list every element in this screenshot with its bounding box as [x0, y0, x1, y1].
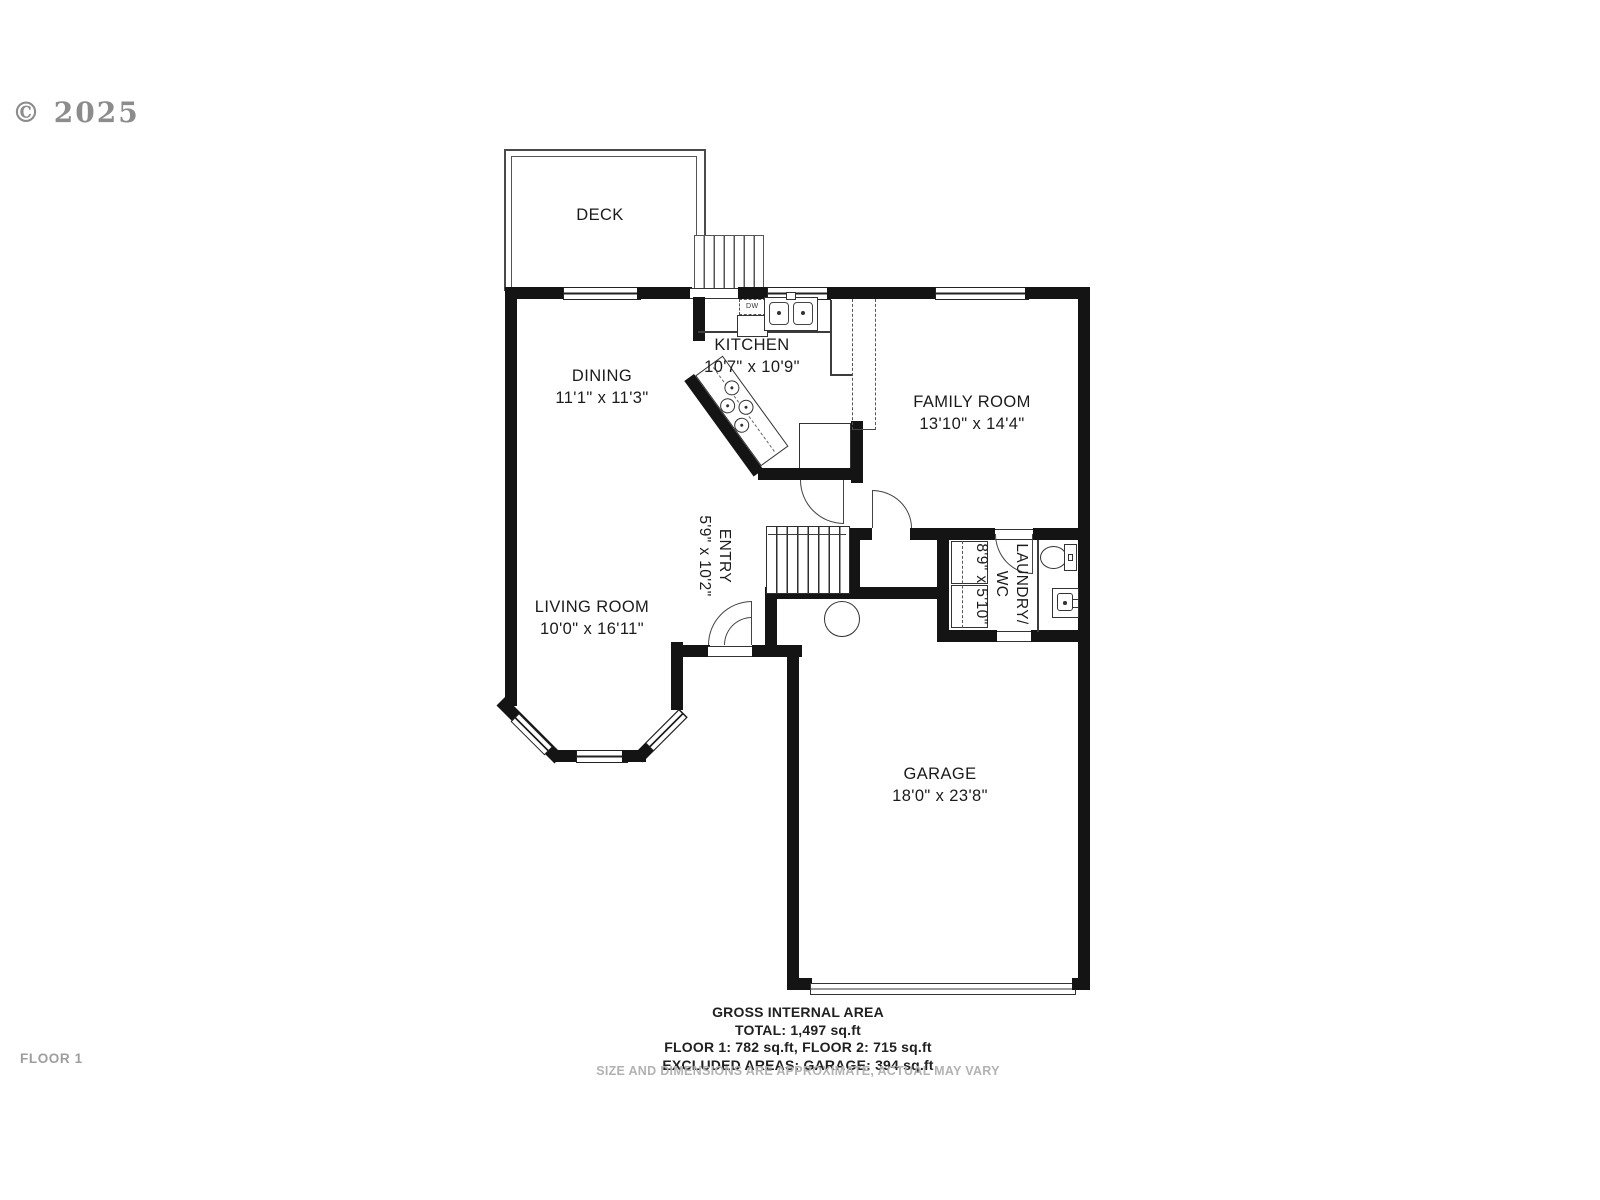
entry-staircase — [766, 526, 850, 594]
summary-floors: FLOOR 1: 782 sq.ft, FLOOR 2: 715 sq.ft — [598, 1039, 998, 1057]
deck-name: DECK — [576, 205, 623, 227]
laundry-wall-bottom — [945, 630, 997, 642]
copyright-watermark: © 2025 — [12, 96, 140, 129]
laundry-dims: 8'9" x 5'10" — [971, 543, 991, 624]
summary-total: TOTAL: 1,497 sq.ft — [598, 1022, 998, 1040]
room-label-dining: DINING 11'1" x 11'3" — [555, 366, 648, 410]
dishwasher-label: DW — [746, 303, 759, 310]
floor-plan: © 2025 FLOOR 1 GROSS INTERNAL AREA TOTAL… — [0, 0, 1600, 1200]
garage-door — [810, 983, 1076, 995]
kitchen-dims: 10'7" x 10'9" — [704, 357, 800, 379]
wall-front — [671, 645, 710, 657]
deck-stairs — [694, 235, 764, 294]
closet-door-arc — [872, 490, 912, 528]
wall-top — [637, 287, 692, 299]
laundry-wc-divider-line — [1037, 540, 1039, 632]
room-label-kitchen: KITCHEN 10'7" x 10'9" — [704, 335, 800, 379]
bay-window-left — [511, 713, 553, 755]
appliance-dashed-line — [962, 541, 963, 628]
family-wall-bottom — [848, 528, 872, 540]
garage-wall-left — [787, 650, 799, 990]
laundry-wall-bottom — [1031, 630, 1090, 642]
bay-window-center — [576, 750, 628, 763]
sink-faucet — [786, 292, 796, 300]
laundry-wall-left — [937, 540, 949, 642]
wc-sink-faucet — [1072, 599, 1079, 608]
family-wall-bottom — [1033, 528, 1090, 540]
pantry-closet — [799, 423, 851, 473]
family-room-window — [935, 287, 1029, 300]
living-room-name: LIVING ROOM — [535, 597, 649, 619]
dishwasher: DW — [739, 299, 766, 315]
dining-name: DINING — [555, 366, 648, 388]
toilet-bowl — [1040, 546, 1067, 569]
wc-sink-drain — [1063, 601, 1067, 605]
kitchen-name: KITCHEN — [704, 335, 800, 357]
front-door-threshold — [708, 646, 752, 657]
family-room-name: FAMILY ROOM — [913, 392, 1030, 414]
kitchen-counter-edge — [830, 300, 832, 376]
toilet-flush-button — [1068, 554, 1073, 561]
garage-wall-bottom — [787, 978, 812, 990]
kitchen-hall-door-arc — [800, 480, 844, 524]
garage-wall-bottom — [1072, 978, 1090, 990]
summary-title: GROSS INTERNAL AREA — [598, 1004, 998, 1022]
room-label-laundry-wc: LAUNDRY/ WC 8'9" x 5'10" — [971, 543, 1031, 624]
refrigerator-dashed-outline — [852, 299, 876, 430]
room-label-living-room: LIVING ROOM 10'0" x 16'11" — [535, 597, 649, 641]
entry-name: ENTRY — [714, 515, 734, 596]
wall-top — [827, 287, 937, 299]
room-label-deck: DECK — [576, 205, 623, 227]
room-label-garage: GARAGE 18'0" x 23'8" — [892, 764, 988, 808]
sink-drain — [777, 311, 781, 315]
laundry-name: LAUNDRY/ — [1011, 543, 1031, 624]
wall-left — [505, 287, 517, 706]
room-label-family-room: FAMILY ROOM 13'10" x 14'4" — [913, 392, 1030, 436]
kitchen-angled-counter — [684, 374, 763, 477]
family-wall-bottom — [910, 528, 995, 540]
dining-window — [563, 287, 641, 300]
kitchen-wall-lower — [758, 468, 853, 480]
water-heater — [824, 601, 860, 637]
kitchen-counter-edge — [830, 374, 853, 376]
wc-name: WC — [991, 543, 1011, 624]
garage-name: GARAGE — [892, 764, 988, 786]
disclaimer: SIZE AND DIMENSIONS ARE APPROXIMATE, ACT… — [568, 1064, 1028, 1078]
entry-wall-right — [765, 597, 777, 657]
sink-drain — [801, 311, 805, 315]
garage-dims: 18'0" x 23'8" — [892, 786, 988, 808]
family-room-dims: 13'10" x 14'4" — [913, 414, 1030, 436]
bay-window-right — [645, 709, 687, 751]
garage-door-threshold — [997, 631, 1031, 642]
living-room-dims: 10'0" x 16'11" — [535, 619, 649, 641]
room-label-entry: ENTRY 5'9" x 10'2" — [694, 515, 734, 596]
entry-dims: 5'9" x 10'2" — [694, 515, 714, 596]
floor-label: FLOOR 1 — [20, 1051, 83, 1066]
dining-dims: 11'1" x 11'3" — [555, 388, 648, 410]
staircase-landing-line — [768, 534, 846, 535]
